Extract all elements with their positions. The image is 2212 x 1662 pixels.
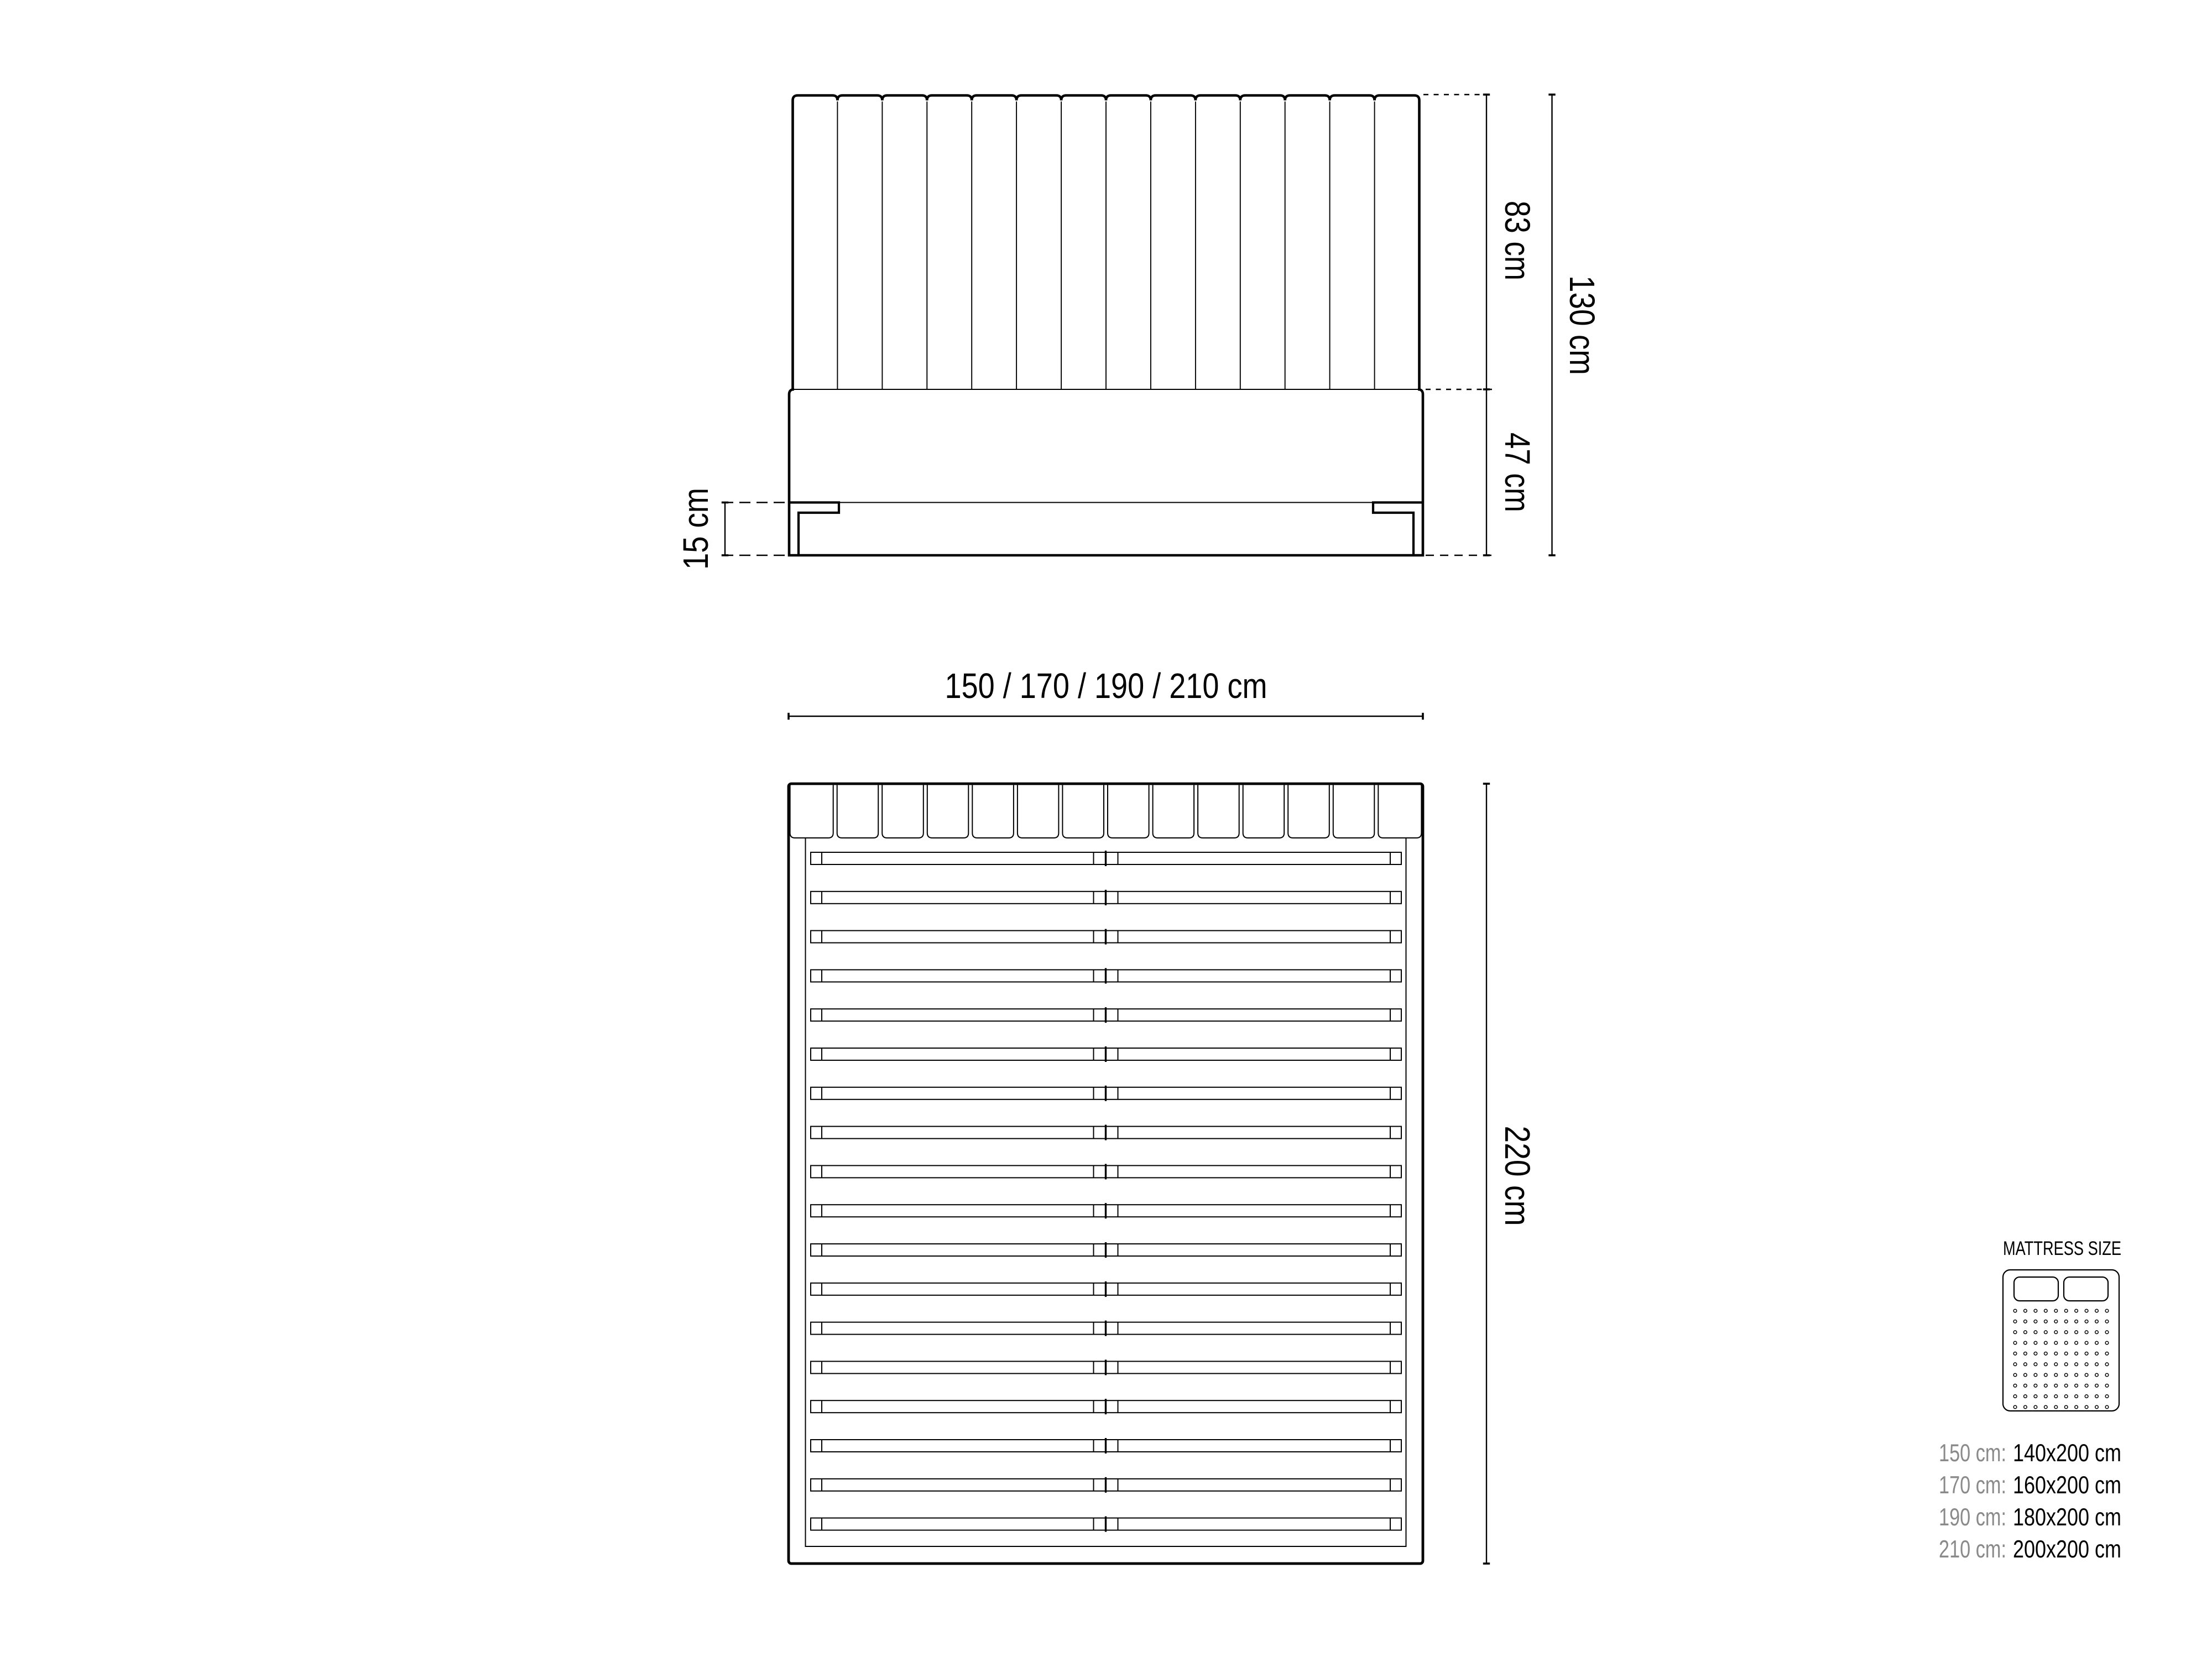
svg-text:150 / 170 / 190 / 210 cm: 150 / 170 / 190 / 210 cm: [945, 666, 1267, 706]
svg-text:160x200 cm: 160x200 cm: [2013, 1472, 2121, 1499]
svg-text:83 cm: 83 cm: [1498, 201, 1537, 280]
svg-text:190 cm:: 190 cm:: [1939, 1504, 2006, 1531]
svg-text:170 cm:: 170 cm:: [1939, 1472, 2006, 1499]
svg-text:220 cm: 220 cm: [1498, 1126, 1537, 1226]
svg-text:130 cm: 130 cm: [1562, 275, 1602, 375]
svg-text:180x200 cm: 180x200 cm: [2013, 1504, 2121, 1531]
svg-text:200x200 cm: 200x200 cm: [2013, 1536, 2121, 1563]
svg-text:15 cm: 15 cm: [676, 488, 716, 570]
svg-text:150 cm:: 150 cm:: [1939, 1440, 2006, 1467]
svg-text:210 cm:: 210 cm:: [1939, 1536, 2006, 1563]
svg-text:140x200 cm: 140x200 cm: [2013, 1440, 2121, 1467]
svg-text:MATTRESS SIZE: MATTRESS SIZE: [2003, 1238, 2121, 1259]
svg-text:47 cm: 47 cm: [1498, 433, 1537, 512]
